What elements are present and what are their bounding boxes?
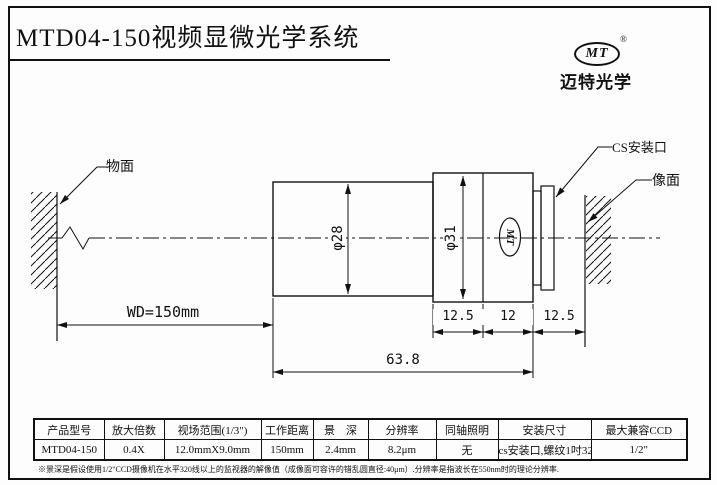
cell-magnification: 0.4X — [104, 440, 164, 461]
footnote: ※景深是假设使用1/2"CCD摄像机在水平320线以上的监视器的解像值（成像面可… — [38, 464, 693, 475]
arrowhead-icon — [57, 322, 67, 328]
header-magnification: 放大倍数 — [104, 419, 164, 440]
arrowhead-icon — [460, 176, 466, 186]
cell-resolution: 8.2μm — [368, 440, 436, 461]
image-plane-hatch — [586, 196, 611, 284]
arrowhead-icon — [433, 329, 443, 335]
header-max-ccd: 最大兼容CCD — [591, 419, 687, 440]
body-diameter-dim: φ31 — [443, 218, 459, 258]
header-resolution: 分辨率 — [368, 419, 436, 440]
header-depth-of-field: 景 深 — [313, 419, 368, 440]
cell-max-ccd: 1/2" — [591, 440, 687, 461]
arrowhead-icon — [345, 284, 351, 294]
spec-table: 产品型号 放大倍数 视场范围(1/3") 工作距离 景 深 分辨率 同轴照明 安… — [33, 418, 688, 461]
arrowhead-icon — [523, 369, 533, 375]
header-coaxial-light: 同轴照明 — [436, 419, 498, 440]
cs-mount-label: CS安装口 — [612, 137, 667, 156]
lens-tube — [273, 182, 433, 296]
spec-header-row: 产品型号 放大倍数 视场范围(1/3") 工作距离 景 深 分辨率 同轴照明 安… — [34, 419, 687, 440]
arrowhead-icon — [460, 289, 466, 299]
leader-cs-mount — [556, 147, 612, 197]
total-length-dim: 63.8 — [373, 352, 433, 368]
arrowhead-icon — [533, 329, 543, 335]
arrowhead-icon — [263, 322, 273, 328]
header-working-distance: 工作距离 — [261, 419, 313, 440]
arrowhead-icon — [273, 369, 283, 375]
segment2-dim: 12 — [483, 309, 533, 325]
cell-working-distance: 150mm — [261, 440, 313, 461]
arrowhead-icon — [345, 184, 351, 194]
cell-coaxial-light: 无 — [436, 440, 498, 461]
cell-model: MTD04-150 — [34, 440, 104, 461]
datasheet-page: MTD04-150视频显微光学系统 MT ® 迈特光学 — [0, 0, 717, 485]
arrowhead-icon — [483, 329, 493, 335]
segment1-dim: 12.5 — [433, 309, 483, 325]
spec-data-row: MTD04-150 0.4X 12.0mmX9.0mm 150mm 2.4mm … — [34, 440, 687, 461]
header-fov: 视场范围(1/3") — [164, 419, 261, 440]
cell-depth-of-field: 2.4mm — [313, 440, 368, 461]
working-distance-dim: WD=150mm — [103, 304, 223, 320]
segment3-dim: 12.5 — [534, 309, 584, 325]
optical-diagram — [0, 0, 717, 485]
arrowhead-icon — [523, 329, 533, 335]
lens-mt-mark: MT — [504, 223, 516, 251]
arrowhead-icon — [473, 329, 483, 335]
arrowhead-icon — [575, 329, 585, 335]
object-plane-label: 物面 — [106, 156, 134, 176]
header-mount-size: 安装尺寸 — [498, 419, 591, 440]
cell-mount-size: cs安装口,螺纹1吋32牙 — [498, 440, 591, 461]
cell-fov: 12.0mmX9.0mm — [164, 440, 261, 461]
header-model: 产品型号 — [34, 419, 104, 440]
object-plane-hatch — [31, 192, 57, 289]
image-plane-label: 像面 — [652, 170, 680, 190]
tube-diameter-dim: φ28 — [330, 218, 346, 258]
